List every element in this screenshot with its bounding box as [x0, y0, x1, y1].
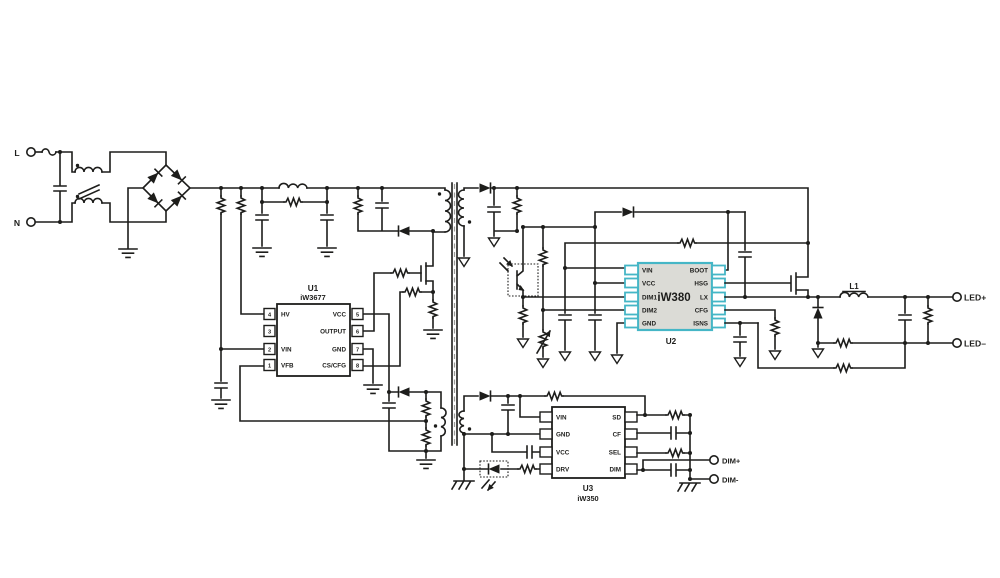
- ic-u1: U1 iW3677 4 3 2 1 HV VIN VFB 5 6 7 8 VCC…: [264, 284, 363, 376]
- secondary-rail: [464, 188, 808, 243]
- gate-drive: [363, 273, 421, 331]
- output-inductor-label: L1: [849, 282, 859, 291]
- bridge-rectifier: [143, 165, 190, 211]
- u2-vcc-line: [589, 227, 625, 350]
- u2-gnd-line: [617, 323, 625, 353]
- u1-part: iW3677: [300, 293, 325, 302]
- ground-arrow-icon: [735, 358, 746, 367]
- cfg-line: [725, 310, 775, 318]
- u1-pin-vfb: VFB: [281, 362, 294, 369]
- u3-ground-rail: [690, 415, 710, 479]
- secondary-winding: [459, 190, 472, 226]
- sense-resistor: [429, 300, 437, 318]
- u1-pin-output: OUTPUT: [320, 328, 346, 335]
- ground-arrow-icon: [813, 349, 824, 358]
- u2-pin-isns: ISNS: [693, 320, 708, 327]
- isns-line: [725, 323, 758, 356]
- ground-icon: [119, 249, 137, 257]
- primary-rail: [190, 188, 445, 190]
- u2-ref: U2: [666, 337, 677, 346]
- u2-pin-hsg: HSG: [694, 280, 708, 287]
- u3-part: iW350: [577, 494, 598, 503]
- u1-pin5-num: 5: [356, 312, 359, 318]
- boot-diode: [623, 207, 634, 217]
- u1-pin-hv: HV: [281, 311, 291, 318]
- u2-pin-dim1: DIM1: [642, 294, 658, 301]
- damping-resistor: [284, 198, 302, 206]
- led-minus-label: LED–: [964, 339, 986, 349]
- opto-transistor: [500, 227, 538, 297]
- line-terminal-label: L: [14, 148, 19, 158]
- u1-ref: U1: [308, 284, 319, 293]
- led-plus-label: LED+: [964, 293, 986, 303]
- ground-arrow-icon: [489, 238, 500, 247]
- bootstrap-cap: [739, 212, 751, 297]
- sel-resistor: [666, 449, 684, 457]
- cfg-resistor: [771, 318, 779, 336]
- ground-arrow-icon: [612, 355, 623, 364]
- filter-cap-2: [321, 188, 333, 246]
- dim-minus-terminal: [710, 475, 718, 483]
- boot-supply-line: [523, 212, 745, 270]
- u1-pin-vcc: VCC: [333, 311, 347, 318]
- cf-line: [637, 427, 690, 439]
- output-inductor: L1: [840, 282, 868, 297]
- startup-resistor-1: [217, 196, 225, 214]
- gate-resistor: [391, 269, 409, 277]
- opto-load-resistor: [519, 306, 527, 324]
- wire: [128, 188, 143, 248]
- primary-winding: [438, 190, 451, 232]
- u1-pin8-num: 8: [356, 363, 359, 369]
- ic-u3: VIN GND VCC DRV SD CF SEL DIM U3 iW350: [540, 407, 637, 503]
- cs-filter-resistor: [403, 288, 421, 296]
- common-mode-choke: [75, 164, 102, 203]
- u2-pin-lx: LX: [700, 294, 709, 301]
- drv-resistor: [518, 465, 536, 473]
- u1-pin-gnd: GND: [332, 346, 346, 353]
- u3-pin-cf: CF: [613, 431, 622, 438]
- u2-pin-dim2: DIM2: [642, 307, 658, 314]
- u2-part: iW380: [657, 292, 690, 304]
- u3-dimmer-section: VIN GND VCC DRV SD CF SEL DIM U3 iW350 D…: [452, 391, 741, 503]
- ic-u2: VIN VCC DIM1 DIM2 GND BOOT HSG LX CFG IS…: [625, 263, 725, 346]
- wire: [241, 214, 264, 314]
- emission-arrows-icon: [482, 480, 495, 490]
- u2-pin-boot: BOOT: [690, 267, 708, 274]
- u1-pin-vin: VIN: [281, 346, 292, 353]
- x-capacitor: [54, 152, 66, 222]
- u2-pin-vcc: VCC: [642, 280, 656, 287]
- aux-winding: [434, 408, 446, 436]
- led-minus-terminal: [953, 339, 961, 347]
- led-driver-schematic: L N: [0, 0, 1000, 578]
- u3-winding: [459, 411, 471, 433]
- ground-arrow-icon: [560, 352, 571, 361]
- dim1-line: [523, 297, 625, 306]
- earth-ground-icon: [452, 481, 474, 489]
- led-plus-terminal: [953, 293, 961, 301]
- filter-inductor: [279, 183, 307, 188]
- vfb-resistor-lower: [422, 428, 430, 446]
- ground-icon: [253, 248, 271, 256]
- wire: [102, 152, 166, 222]
- u2-pin-cfg: CFG: [695, 307, 708, 314]
- u1-pin1-num: 1: [268, 363, 271, 369]
- u3-pin-drv: DRV: [556, 466, 570, 473]
- u1-pin-cscfg: CS/CFG: [322, 362, 346, 369]
- u1-pin2-num: 2: [268, 347, 271, 353]
- isns-sense-line: [758, 323, 905, 368]
- dim-minus-label: DIM-: [722, 476, 739, 485]
- ground-arrow-icon: [538, 359, 549, 368]
- schematic-canvas: L N: [0, 0, 1000, 578]
- ground-icon: [424, 330, 442, 338]
- neutral-terminal-label: N: [14, 218, 20, 228]
- ground-arrow-icon: [590, 352, 601, 361]
- ground-arrow-icon: [459, 258, 470, 267]
- u3-pin-vin: VIN: [556, 414, 567, 421]
- fuse: [42, 149, 56, 155]
- output-load-resistor: [924, 306, 932, 324]
- rcd-clamp: [354, 188, 433, 236]
- u1-pin6-num: 6: [356, 329, 359, 335]
- ac-input-section: L N: [14, 148, 190, 258]
- u1-pin7-num: 7: [356, 347, 359, 353]
- output-cap: [899, 297, 911, 343]
- dim2-line: [543, 266, 625, 330]
- dim2-pullup-resistor: [539, 248, 547, 266]
- u3-rectifier-diode: [480, 391, 491, 401]
- u3-gnd-vcc: [464, 434, 540, 458]
- earth-ground-icon: [678, 483, 700, 491]
- freewheel-diode: [813, 308, 823, 319]
- sync-mosfet: [725, 243, 808, 297]
- isns-resistor: [834, 364, 852, 372]
- transformer: [438, 183, 471, 445]
- ground-icon: [417, 460, 435, 468]
- dim-plus-label: DIM+: [722, 457, 741, 466]
- opto-led: [464, 461, 540, 490]
- u3-ref: U3: [583, 484, 594, 493]
- output-section: L1 LED+ LED–: [725, 282, 986, 358]
- u3-pin-dim: DIM: [609, 466, 621, 473]
- u3-vin-line: [520, 396, 540, 417]
- sd-resistor: [666, 411, 684, 419]
- current-sense-resistor: [834, 339, 852, 347]
- bulk-cap: [488, 188, 517, 236]
- dim-plus-terminal: [710, 456, 718, 464]
- photon-arrows-icon: [500, 258, 512, 271]
- u1-controller-section: U1 iW3677 4 3 2 1 HV VIN VFB 5 6 7 8 VCC…: [240, 232, 446, 468]
- ground-arrow-icon: [518, 339, 529, 348]
- neutral-terminal: [27, 218, 35, 226]
- output-rectifier-diode: [480, 183, 491, 193]
- u3-pin-gnd: GND: [556, 431, 570, 438]
- u3-pin-sd: SD: [612, 414, 621, 421]
- ground-icon: [364, 385, 382, 393]
- vfb-resistor-upper: [422, 399, 430, 417]
- filter-cap-1: [256, 188, 268, 246]
- u2-pin-vin: VIN: [642, 267, 653, 274]
- line-terminal: [27, 148, 35, 156]
- u3-pin-vcc: VCC: [556, 449, 570, 456]
- sd-resistor-top: [545, 392, 563, 400]
- wire: [35, 152, 75, 222]
- wire: [426, 232, 445, 292]
- u3-pin-sel: SEL: [609, 449, 621, 456]
- u1-pin3-num: 3: [268, 329, 271, 335]
- vin-filter-resistor: [678, 239, 696, 247]
- aux-diode: [399, 387, 410, 397]
- ground-icon: [318, 248, 336, 256]
- startup-resistor-2: [237, 196, 245, 214]
- ground-arrow-icon: [770, 351, 781, 360]
- bleeder-resistor: [513, 196, 521, 214]
- u2-pin-gnd: GND: [642, 320, 656, 327]
- u3-supply-cap: [502, 396, 514, 434]
- ground-icon: [212, 400, 230, 408]
